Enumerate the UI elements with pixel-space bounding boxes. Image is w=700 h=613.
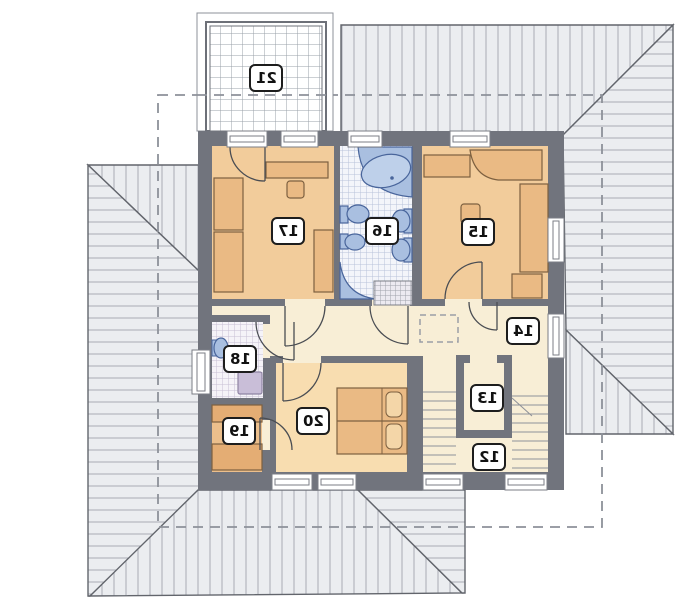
room-label-13: 13 (470, 384, 504, 412)
pillow (386, 392, 402, 417)
room-label-16: 16 (365, 217, 399, 245)
window (192, 350, 210, 394)
floor-plan-canvas: 12 13 14 15 16 17 18 19 20 21 (0, 0, 700, 613)
window (318, 474, 356, 490)
room-label-20: 20 (296, 407, 330, 435)
window (227, 131, 267, 147)
window (505, 474, 547, 490)
room-20-bed (337, 388, 407, 454)
floor-plan-drawing (0, 0, 700, 613)
window (548, 218, 564, 262)
window (348, 131, 382, 147)
bidet-bowl (345, 234, 365, 250)
window (450, 131, 490, 147)
pillow (386, 424, 402, 449)
room-label-19: 19 (222, 417, 256, 445)
window (548, 314, 564, 358)
washing-machine (238, 372, 262, 394)
window (423, 474, 463, 490)
window (272, 474, 312, 490)
chair (287, 181, 304, 198)
room-label-12: 12 (472, 443, 506, 471)
room-label-18: 18 (223, 345, 257, 373)
window (281, 131, 318, 147)
room-label-17: 17 (271, 217, 305, 245)
room-label-14: 14 (506, 317, 540, 345)
hallway-floor-left (212, 306, 270, 315)
room-label-15: 15 (461, 218, 495, 246)
chimney-block (374, 281, 412, 305)
room-label-21: 21 (249, 64, 283, 92)
